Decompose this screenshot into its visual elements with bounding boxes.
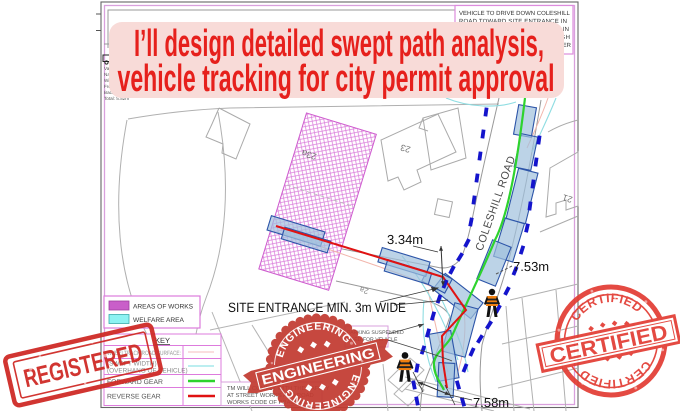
svg-text:7.58m: 7.58m xyxy=(473,395,509,410)
svg-text:AREAS OF WORKS: AREAS OF WORKS xyxy=(133,304,194,311)
svg-text:vehicle tracking for city per: vehicle tracking for city permit approva… xyxy=(118,58,555,100)
svg-text:WELFARE AREA: WELFARE AREA xyxy=(133,317,185,324)
svg-text:REVERSE GEAR: REVERSE GEAR xyxy=(107,394,161,401)
svg-text:VEHICLE TO DRIVE DOWN COLESHIL: VEHICLE TO DRIVE DOWN COLESHILL xyxy=(459,10,570,17)
svg-text:7.53m: 7.53m xyxy=(513,259,549,274)
svg-text:SITE ENTRANCE MIN. 3m WIDE: SITE ENTRANCE MIN. 3m WIDE xyxy=(228,300,406,315)
svg-text:3.34m: 3.34m xyxy=(387,232,423,247)
